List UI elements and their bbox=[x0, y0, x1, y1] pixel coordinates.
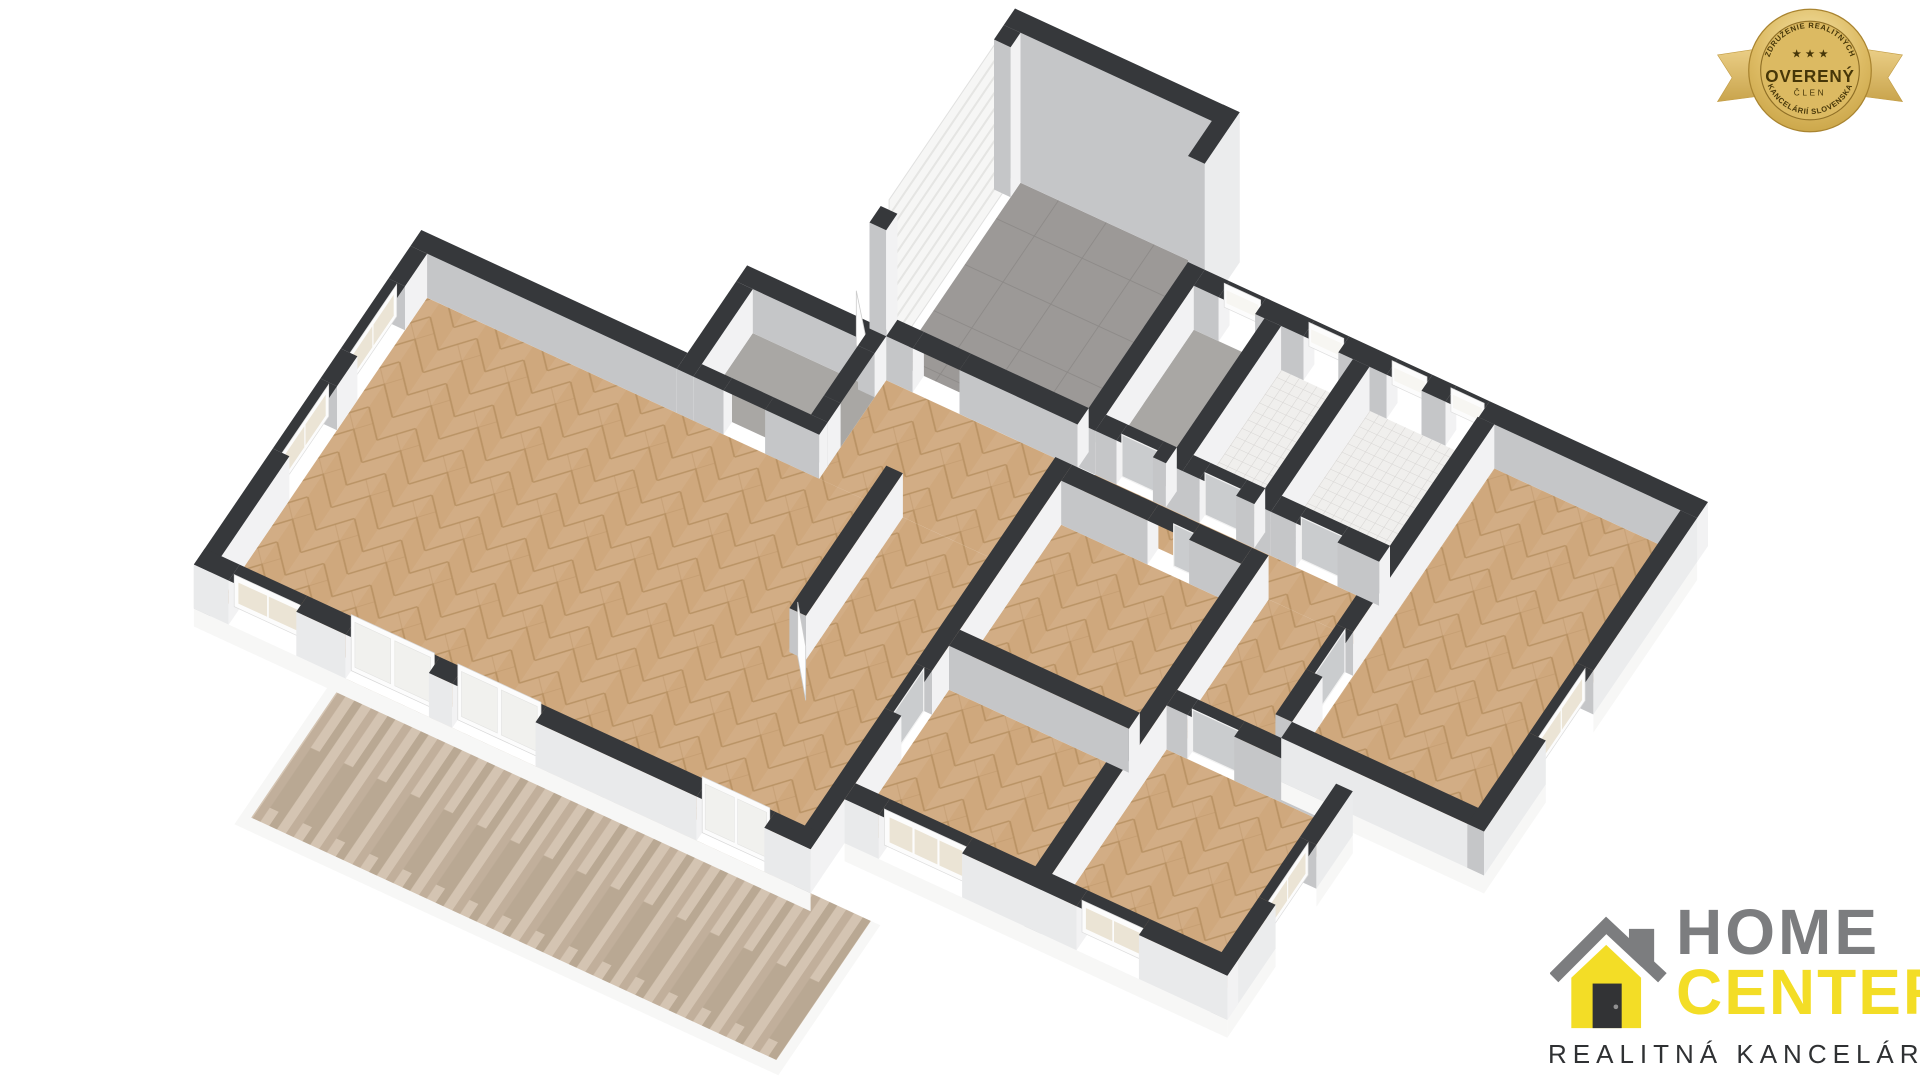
logo-line2: CENTER bbox=[1676, 955, 1920, 1029]
home-icon-door-knob bbox=[1614, 1004, 1619, 1009]
badge-sub-text: ČLEN bbox=[1794, 87, 1827, 97]
wall-face bbox=[1011, 33, 1021, 198]
home-icon bbox=[1550, 909, 1674, 1031]
wall-face bbox=[994, 40, 1011, 198]
wall-face bbox=[1153, 457, 1166, 507]
agency-logo: HOME CENTER REALITNÁ KANCELÁRIA bbox=[1546, 903, 1920, 1080]
wall-face bbox=[1183, 471, 1200, 523]
badge-stars: ★ ★ ★ bbox=[1791, 48, 1828, 60]
certification-badge: ZDRUŽENIE REALITNÝCH KANCELÁRIÍ SLOVENSK… bbox=[1706, 4, 1914, 138]
logo-tagline: REALITNÁ KANCELÁRIA bbox=[1548, 1039, 1920, 1070]
page: ZDRUŽENIE REALITNÝCH KANCELÁRIÍ SLOVENSK… bbox=[0, 0, 1920, 1080]
wall-face bbox=[1236, 496, 1254, 548]
badge-center-text: OVERENÝ bbox=[1765, 66, 1855, 86]
wall-face bbox=[1467, 824, 1484, 876]
wall-face bbox=[677, 369, 694, 421]
